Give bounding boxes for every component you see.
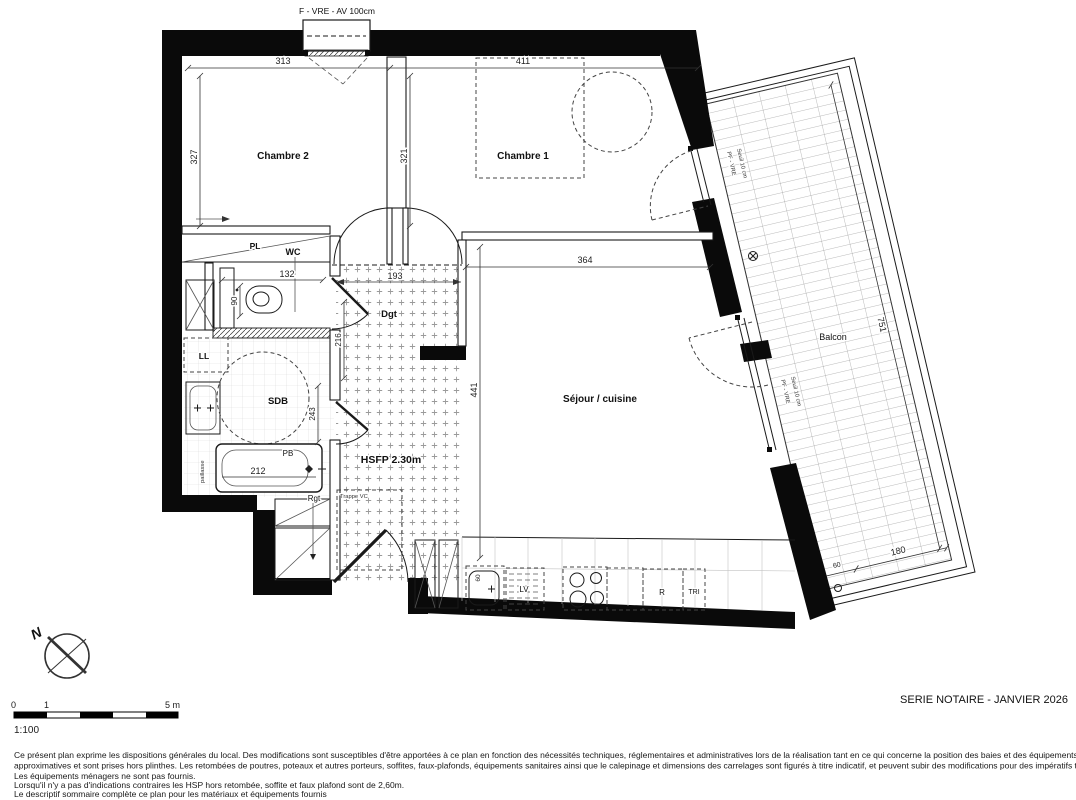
label-paillasse: paillasse <box>200 460 206 483</box>
room-label-dgt: Dgt <box>381 309 398 320</box>
label-trappe: Trappe VC <box>340 494 368 500</box>
scale-tick-0: 0 <box>11 700 16 710</box>
dim-sdb-h: 243 <box>308 407 317 421</box>
door-arc-chambre2 <box>334 208 390 264</box>
room-label-wc: WC <box>286 247 301 257</box>
label-lv: LV <box>519 585 529 594</box>
hallway-tiled-floor <box>336 264 463 582</box>
disclaimer-line-5: Le descriptif sommaire complète ce plan … <box>14 789 327 799</box>
window-swing <box>309 58 367 84</box>
window-top-label: F - VRE - AV 100cm <box>299 6 375 16</box>
toilet-seat <box>253 292 269 306</box>
scale-ratio: 1:100 <box>14 725 39 736</box>
room-label-balcon: Balcon <box>819 332 847 342</box>
dim-sejour-w: 364 <box>577 255 592 265</box>
disclaimer-line-1: Ce présent plan exprime les dispositions… <box>14 750 1076 760</box>
room-label-chambre1: Chambre 1 <box>497 151 549 162</box>
dim-chambre2-h: 327 <box>189 149 199 164</box>
label-rgt: Rgt <box>308 494 321 503</box>
wc-fixtures <box>236 257 295 313</box>
counter-front-edge <box>462 537 795 540</box>
label-pb: PB <box>283 449 294 458</box>
window-top-assembly: F - VRE - AV 100cm <box>299 6 375 84</box>
fridge: R <box>643 569 683 610</box>
counter-grid <box>462 537 795 610</box>
dim-chambre2-w: 313 <box>275 56 290 66</box>
dim-dgt-w: 193 <box>387 271 402 281</box>
room-label-chambre2: Chambre 2 <box>257 151 309 162</box>
chambre2-arrow <box>196 216 230 222</box>
kitchen-unit <box>607 568 643 610</box>
label-tri: TRI <box>688 589 699 596</box>
label-hsfp: HSFP 2.30m <box>361 454 422 466</box>
dim-sejour-h: 441 <box>469 382 479 397</box>
scale-tick-1: 1 <box>44 700 49 710</box>
scale-bar: 0 1 5 m 1:100 <box>11 700 180 736</box>
compass-north-label: N <box>28 623 45 642</box>
dim-dgt-h: 216 <box>334 333 343 347</box>
dim-chambre1-w: 411 <box>516 56 530 66</box>
dim-wc-h: 90 <box>230 296 239 305</box>
compass-rose: N <box>28 623 89 678</box>
door-leaf-chambre2 <box>387 208 392 264</box>
scale-tick-5: 5 m <box>165 700 180 710</box>
waste-sorting: TRI <box>683 569 705 610</box>
dim-wc-w: 132 <box>279 269 294 279</box>
room-label-sdb: SDB <box>268 396 288 407</box>
disclaimer: Ce présent plan exprime les dispositions… <box>14 750 1076 799</box>
door-leaf-chambre1 <box>403 208 408 264</box>
label-pl: PL <box>250 241 261 251</box>
sink-tap <box>488 586 495 593</box>
floor-plan-canvas: 751 180 60 Balcon F - VRE - AV 100cm <box>0 0 1076 800</box>
label-ll: LL <box>199 351 209 361</box>
disclaimer-line-2: approximatives et sont prises hors plint… <box>14 761 1076 771</box>
bedroom-doors <box>334 208 462 264</box>
rgt-closets: Rgt <box>275 494 330 580</box>
door-swing-chambre1-balcony <box>650 150 694 220</box>
toilet-bowl <box>246 286 282 313</box>
dim-kitchen-depth: 60 <box>475 574 482 582</box>
window-chambre1-balcony <box>691 149 711 207</box>
series-title: SERIE NOTAIRE - JANVIER 2026 <box>900 694 1068 706</box>
room-label-sejour: Séjour / cuisine <box>563 394 637 405</box>
window-sill <box>305 50 368 56</box>
dim-chambre1-h: 321 <box>399 148 409 163</box>
dim-bathtub: 212 <box>250 466 265 476</box>
door-arc-chambre1 <box>406 208 462 264</box>
label-fridge: R <box>659 588 665 597</box>
